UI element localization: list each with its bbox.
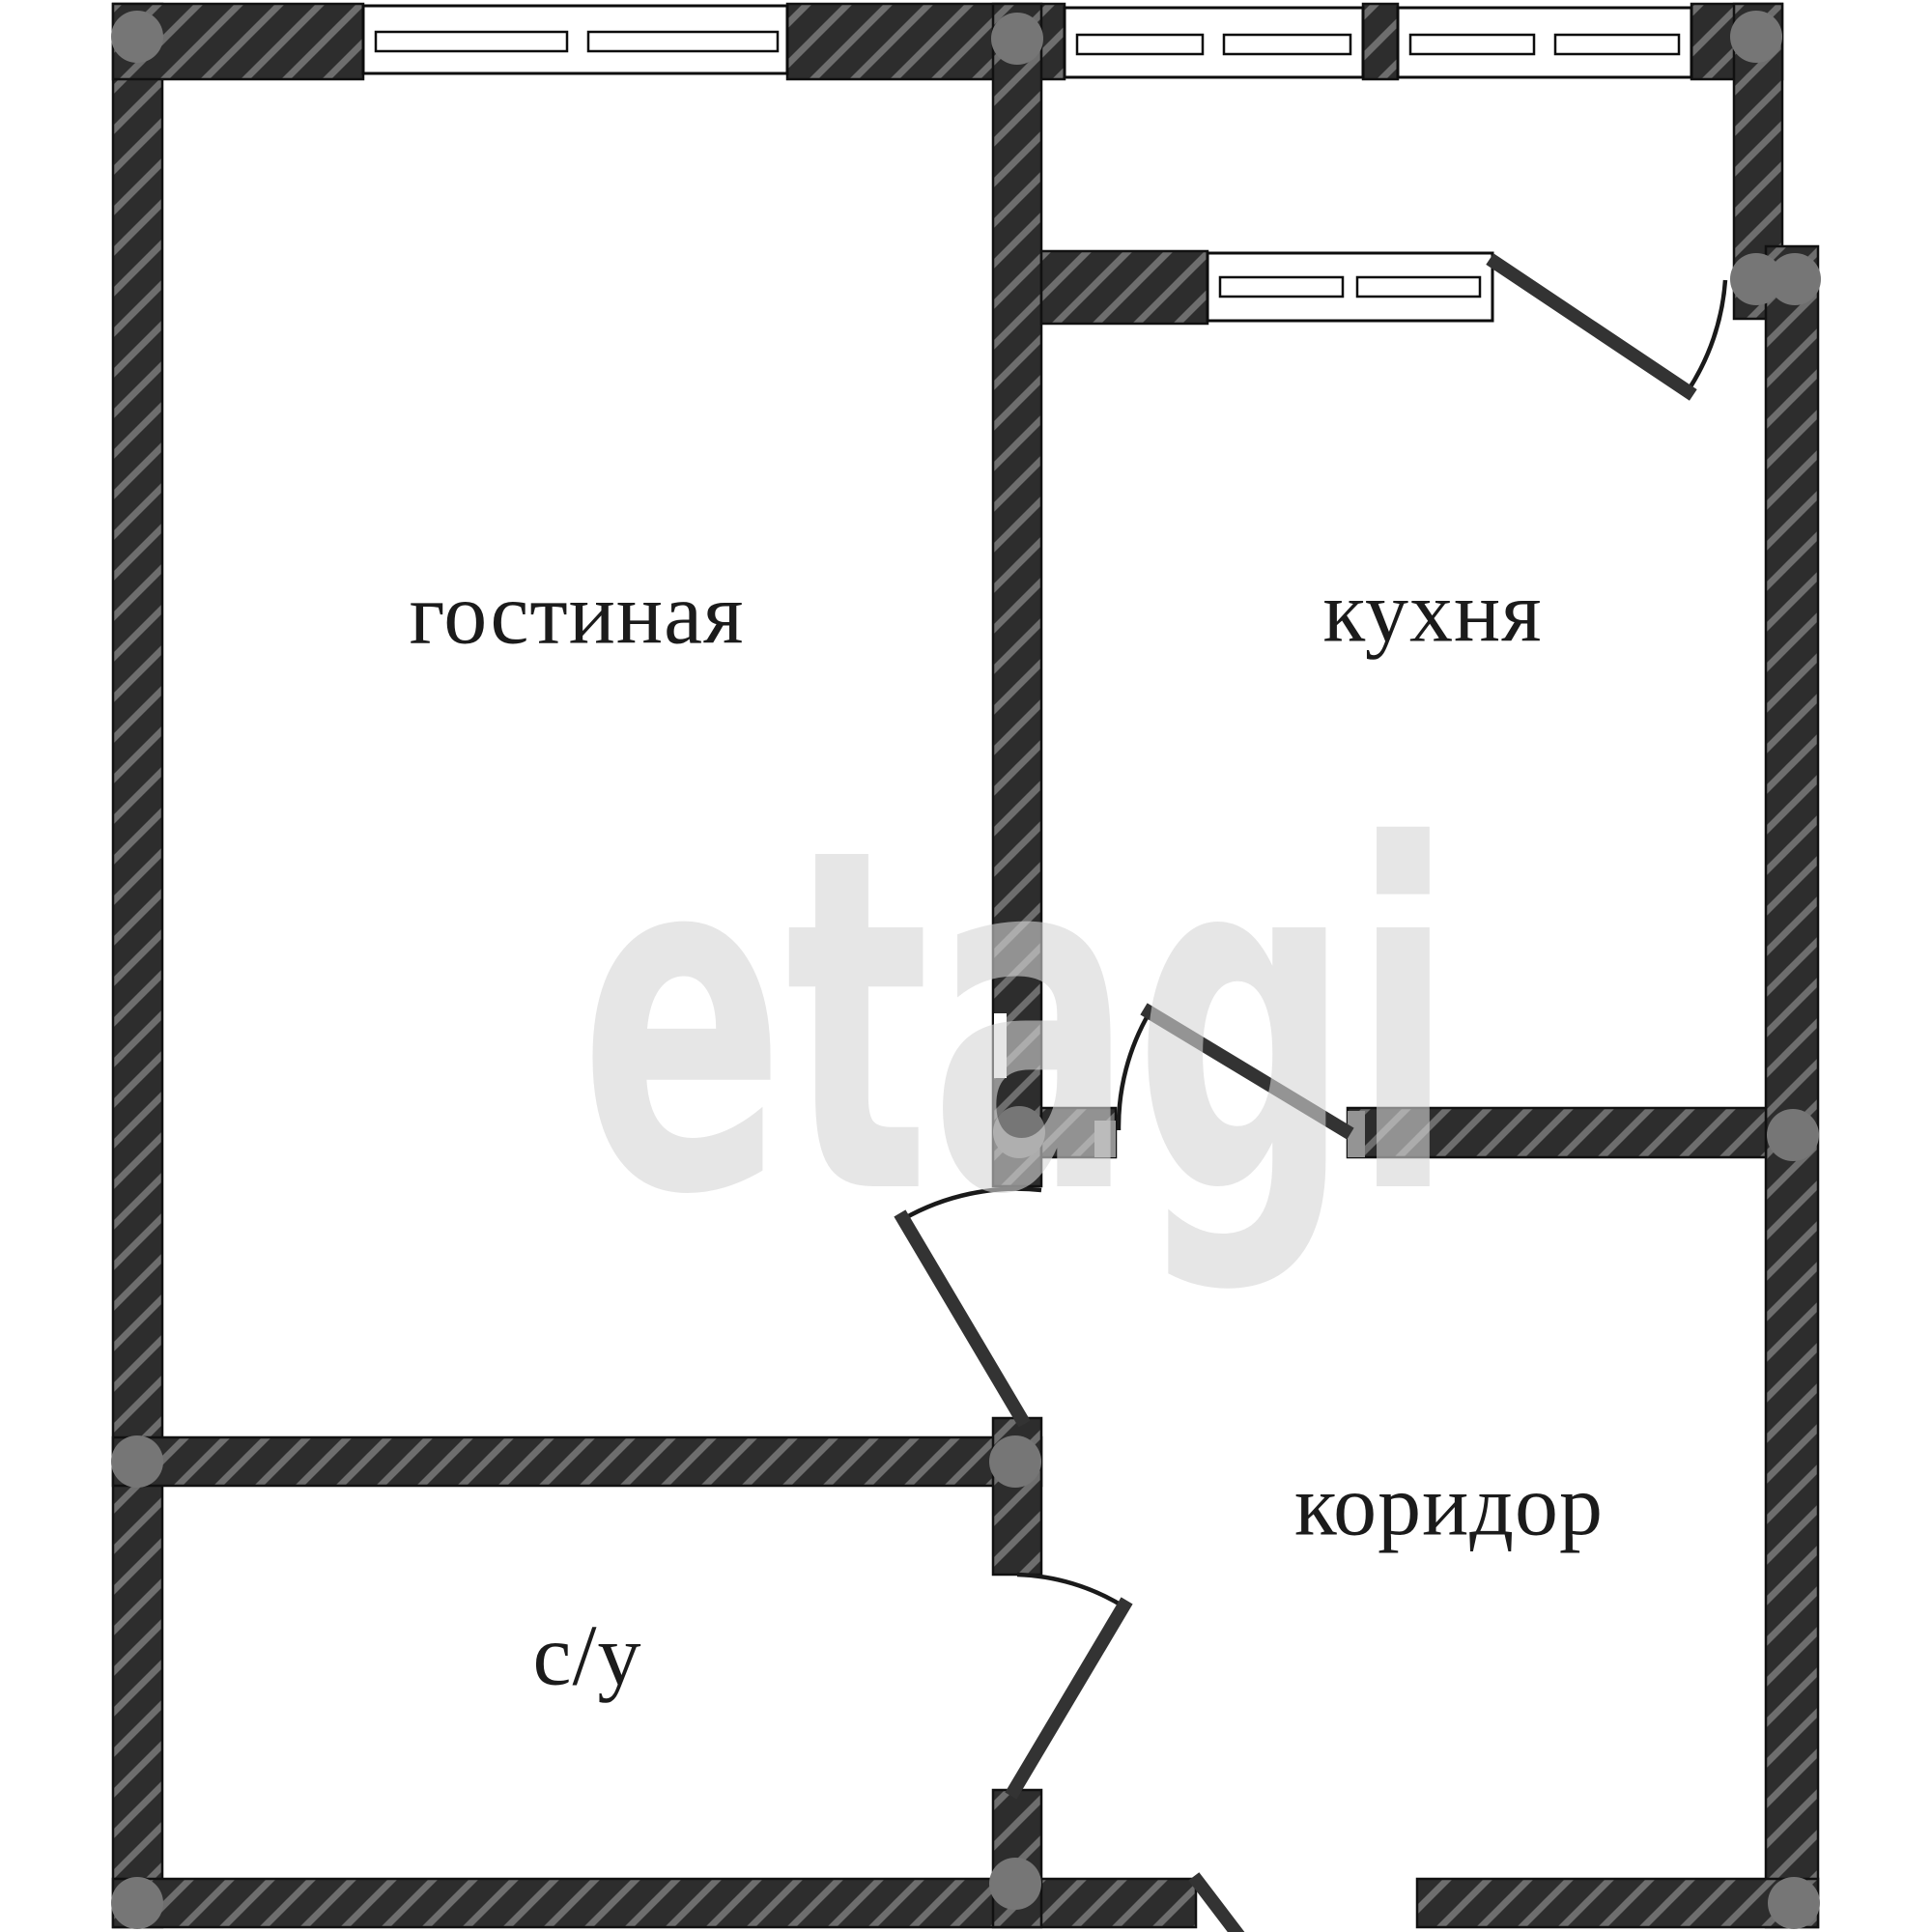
- door-arc-living-room: [903, 1189, 1041, 1219]
- wall-balcony-kitchen-solid: [1041, 251, 1207, 324]
- column-marker: [111, 1877, 163, 1929]
- column-marker: [989, 1435, 1041, 1488]
- door-leaf-entrance: [1198, 1882, 1265, 1932]
- column-marker: [1769, 253, 1821, 305]
- column-marker: [991, 13, 1043, 65]
- door-jamb-kitchen-left: [1094, 1121, 1116, 1157]
- column-marker: [111, 1435, 163, 1488]
- column-marker: [1767, 1109, 1819, 1161]
- door-leaf-balcony: [1495, 263, 1688, 391]
- column-marker: [1730, 11, 1782, 63]
- wall-top-balcony-pier: [1363, 4, 1398, 79]
- room-label-corridor: коридор: [1294, 1457, 1604, 1556]
- room-label-bathroom: с/у: [533, 1606, 642, 1706]
- column-marker: [989, 1858, 1041, 1910]
- window-balcony-2: [1398, 8, 1691, 77]
- window-kitchen-balcony: [1207, 253, 1492, 321]
- room-label-kitchen: кухня: [1322, 563, 1542, 663]
- column-marker: [993, 1106, 1045, 1158]
- column-markers: [111, 11, 1821, 1929]
- door-leaf-living-room: [903, 1219, 1021, 1418]
- door-arc-kitchen: [1119, 1012, 1150, 1130]
- door-leaf-kitchen: [1150, 1012, 1345, 1130]
- wall-left-outer: [113, 4, 162, 1927]
- door-leaf-bathroom: [1014, 1606, 1123, 1790]
- floor-plan-drawing: [0, 0, 1932, 1932]
- wall-livingroom-bottom: [113, 1437, 1041, 1486]
- floorplan-page: { "plan": { "type": "apartment-floor-pla…: [0, 0, 1932, 1932]
- column-marker: [111, 11, 163, 63]
- window-living-room: [363, 6, 787, 73]
- wall-notch: [994, 1013, 1007, 1078]
- door-arc-bathroom: [1017, 1575, 1123, 1606]
- wall-bottom-right: [1417, 1879, 1818, 1927]
- wall-central-vertical: [993, 4, 1041, 1186]
- column-marker: [1768, 1877, 1820, 1929]
- room-label-living-room: гостиная: [410, 565, 745, 665]
- wall-kitchen-corridor-right: [1348, 1108, 1766, 1157]
- door-arc-balcony: [1688, 280, 1725, 391]
- floor-plan: [0, 0, 1932, 1932]
- wall-right-outer: [1766, 246, 1818, 1927]
- window-balcony-1: [1065, 8, 1363, 77]
